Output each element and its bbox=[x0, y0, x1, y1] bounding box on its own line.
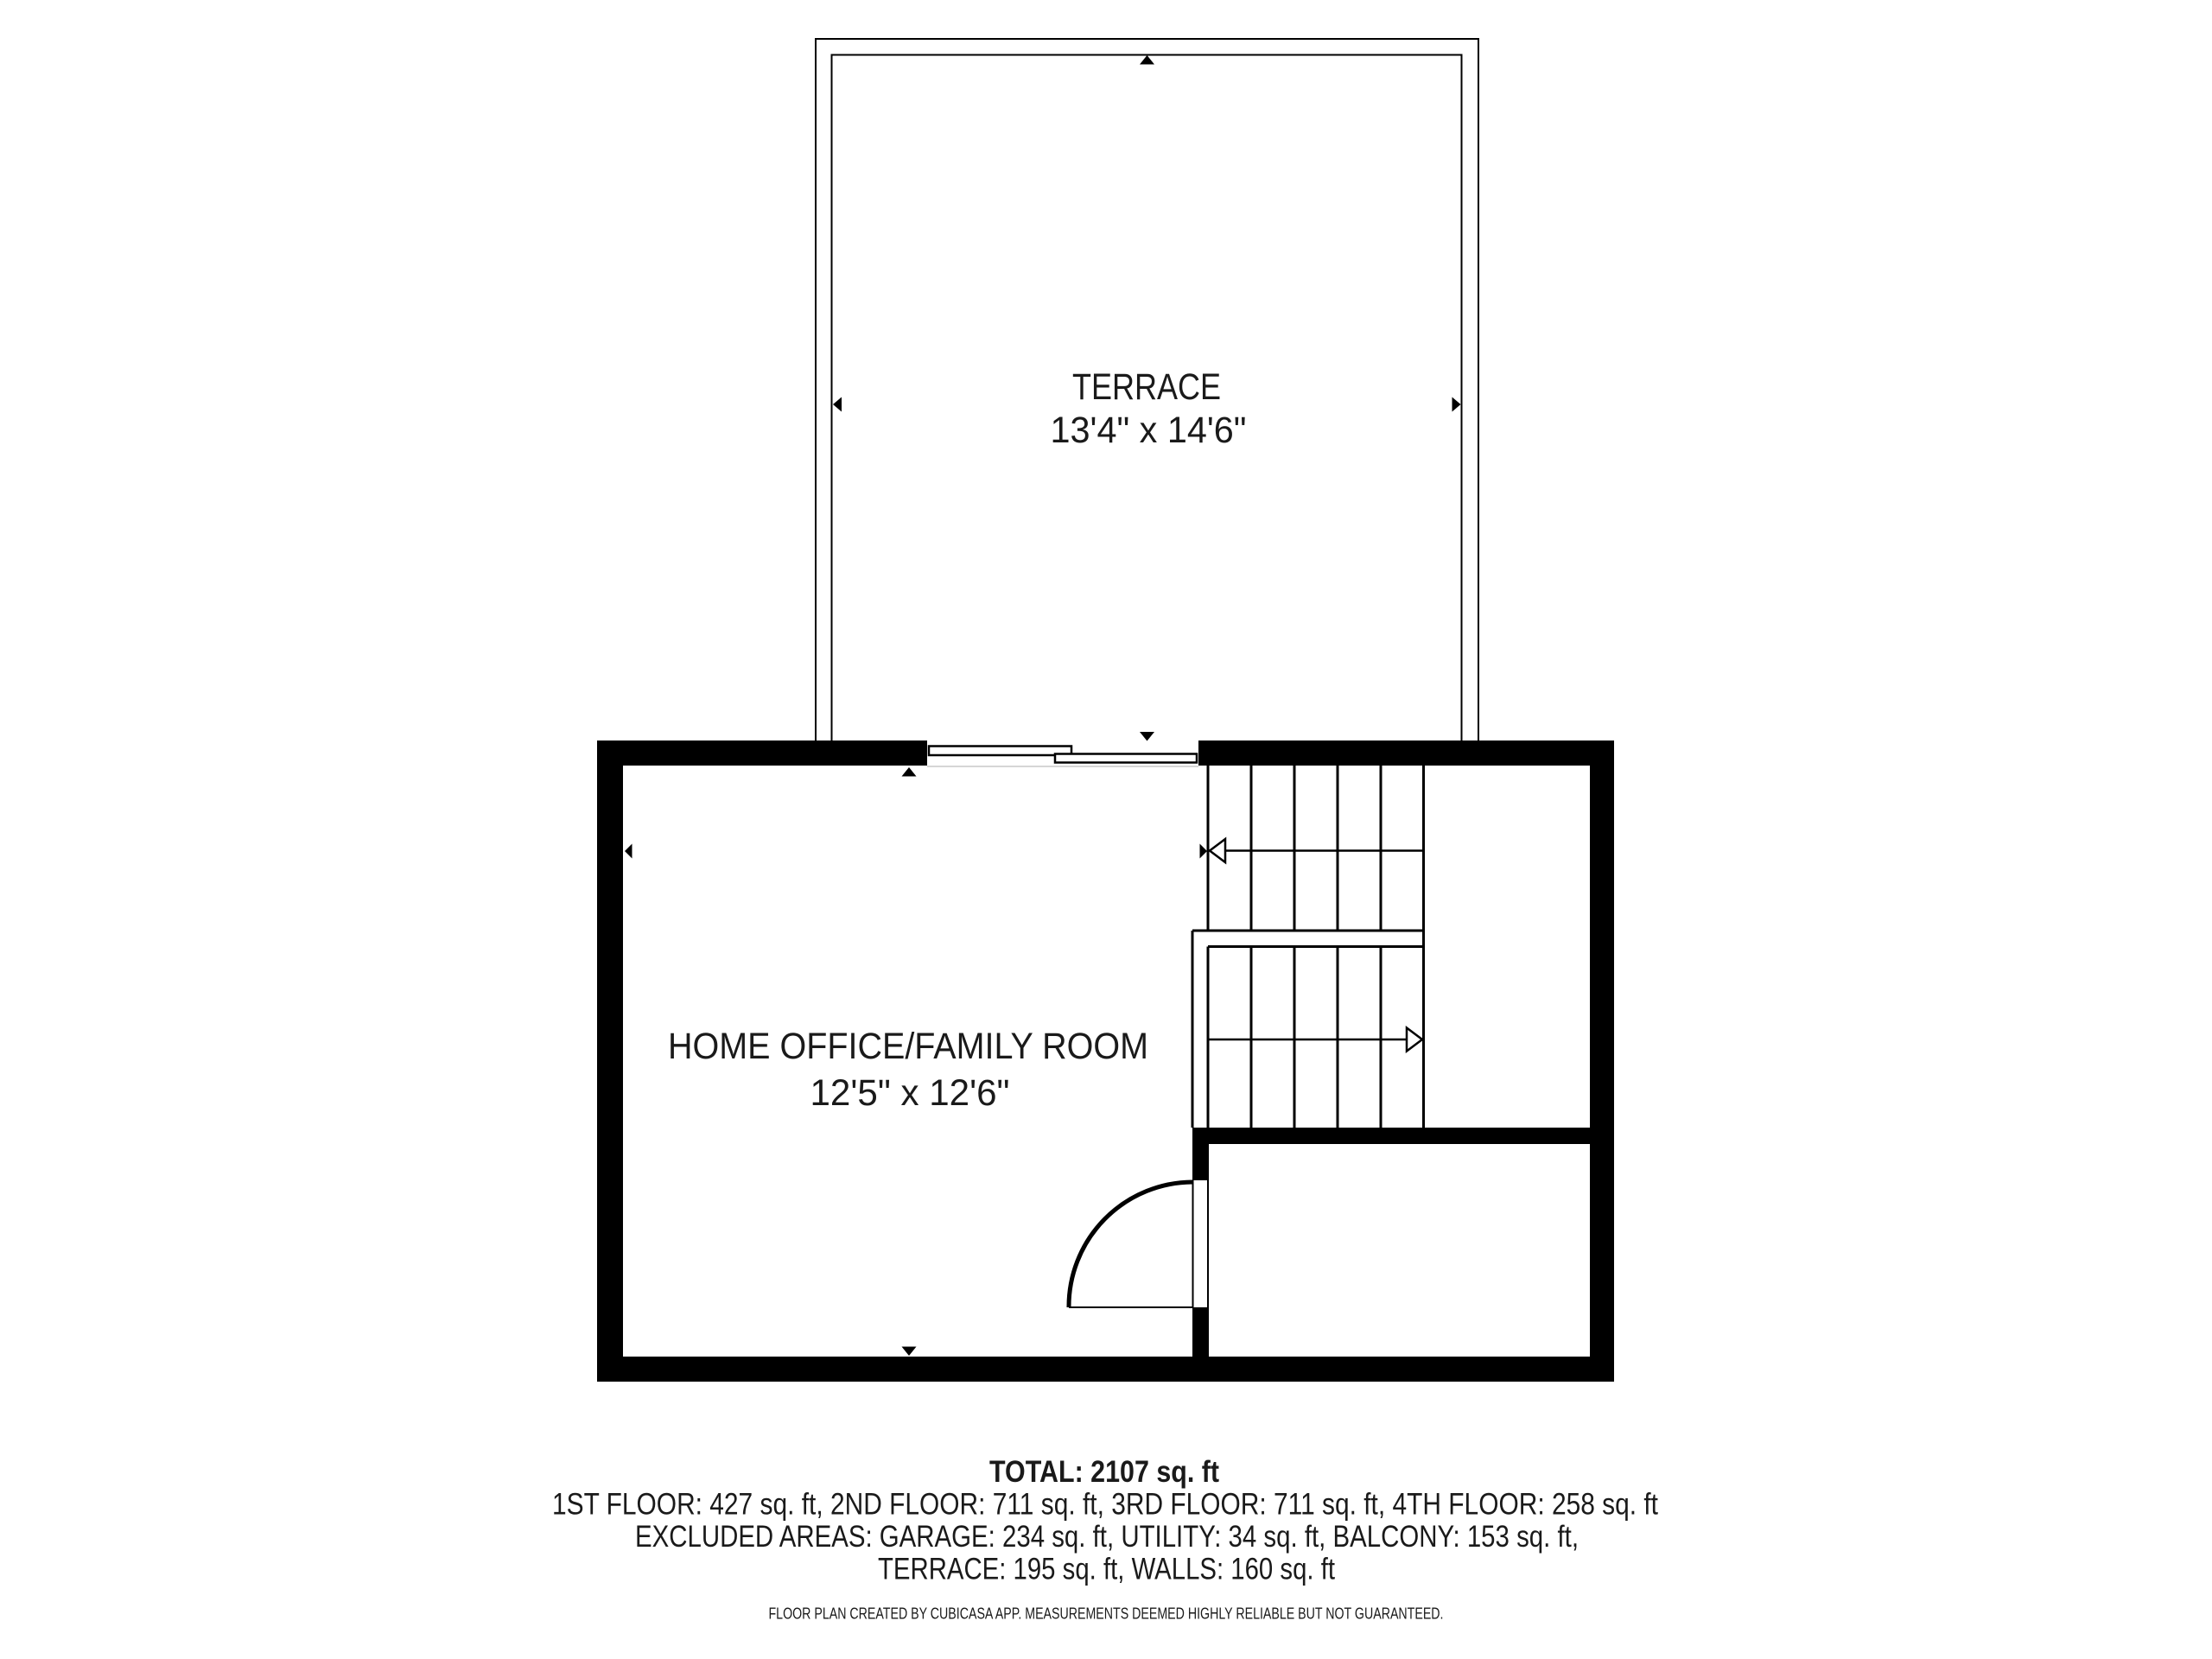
svg-text:HOME OFFICE/FAMILY ROOM: HOME OFFICE/FAMILY ROOM bbox=[668, 1026, 1148, 1067]
svg-text:EXCLUDED AREAS: GARAGE: 234 sq: EXCLUDED AREAS: GARAGE: 234 sq. ft, UTIL… bbox=[635, 1520, 1579, 1554]
svg-text:TERRACE: TERRACE bbox=[1072, 366, 1221, 408]
svg-text:TOTAL: 2107 sq. ft: TOTAL: 2107 sq. ft bbox=[989, 1455, 1219, 1489]
svg-text:1ST FLOOR: 427 sq. ft, 2ND FLO: 1ST FLOOR: 427 sq. ft, 2ND FLOOR: 711 sq… bbox=[552, 1488, 1658, 1522]
svg-text:FLOOR PLAN CREATED BY CUBICASA: FLOOR PLAN CREATED BY CUBICASA APP. MEAS… bbox=[769, 1605, 1444, 1623]
svg-text:13'4" x 14'6": 13'4" x 14'6" bbox=[1051, 410, 1247, 451]
svg-text:12'5" x 12'6": 12'5" x 12'6" bbox=[810, 1072, 1010, 1114]
svg-text:TERRACE: 195 sq. ft, WALLS: 16: TERRACE: 195 sq. ft, WALLS: 160 sq. ft bbox=[878, 1553, 1335, 1586]
